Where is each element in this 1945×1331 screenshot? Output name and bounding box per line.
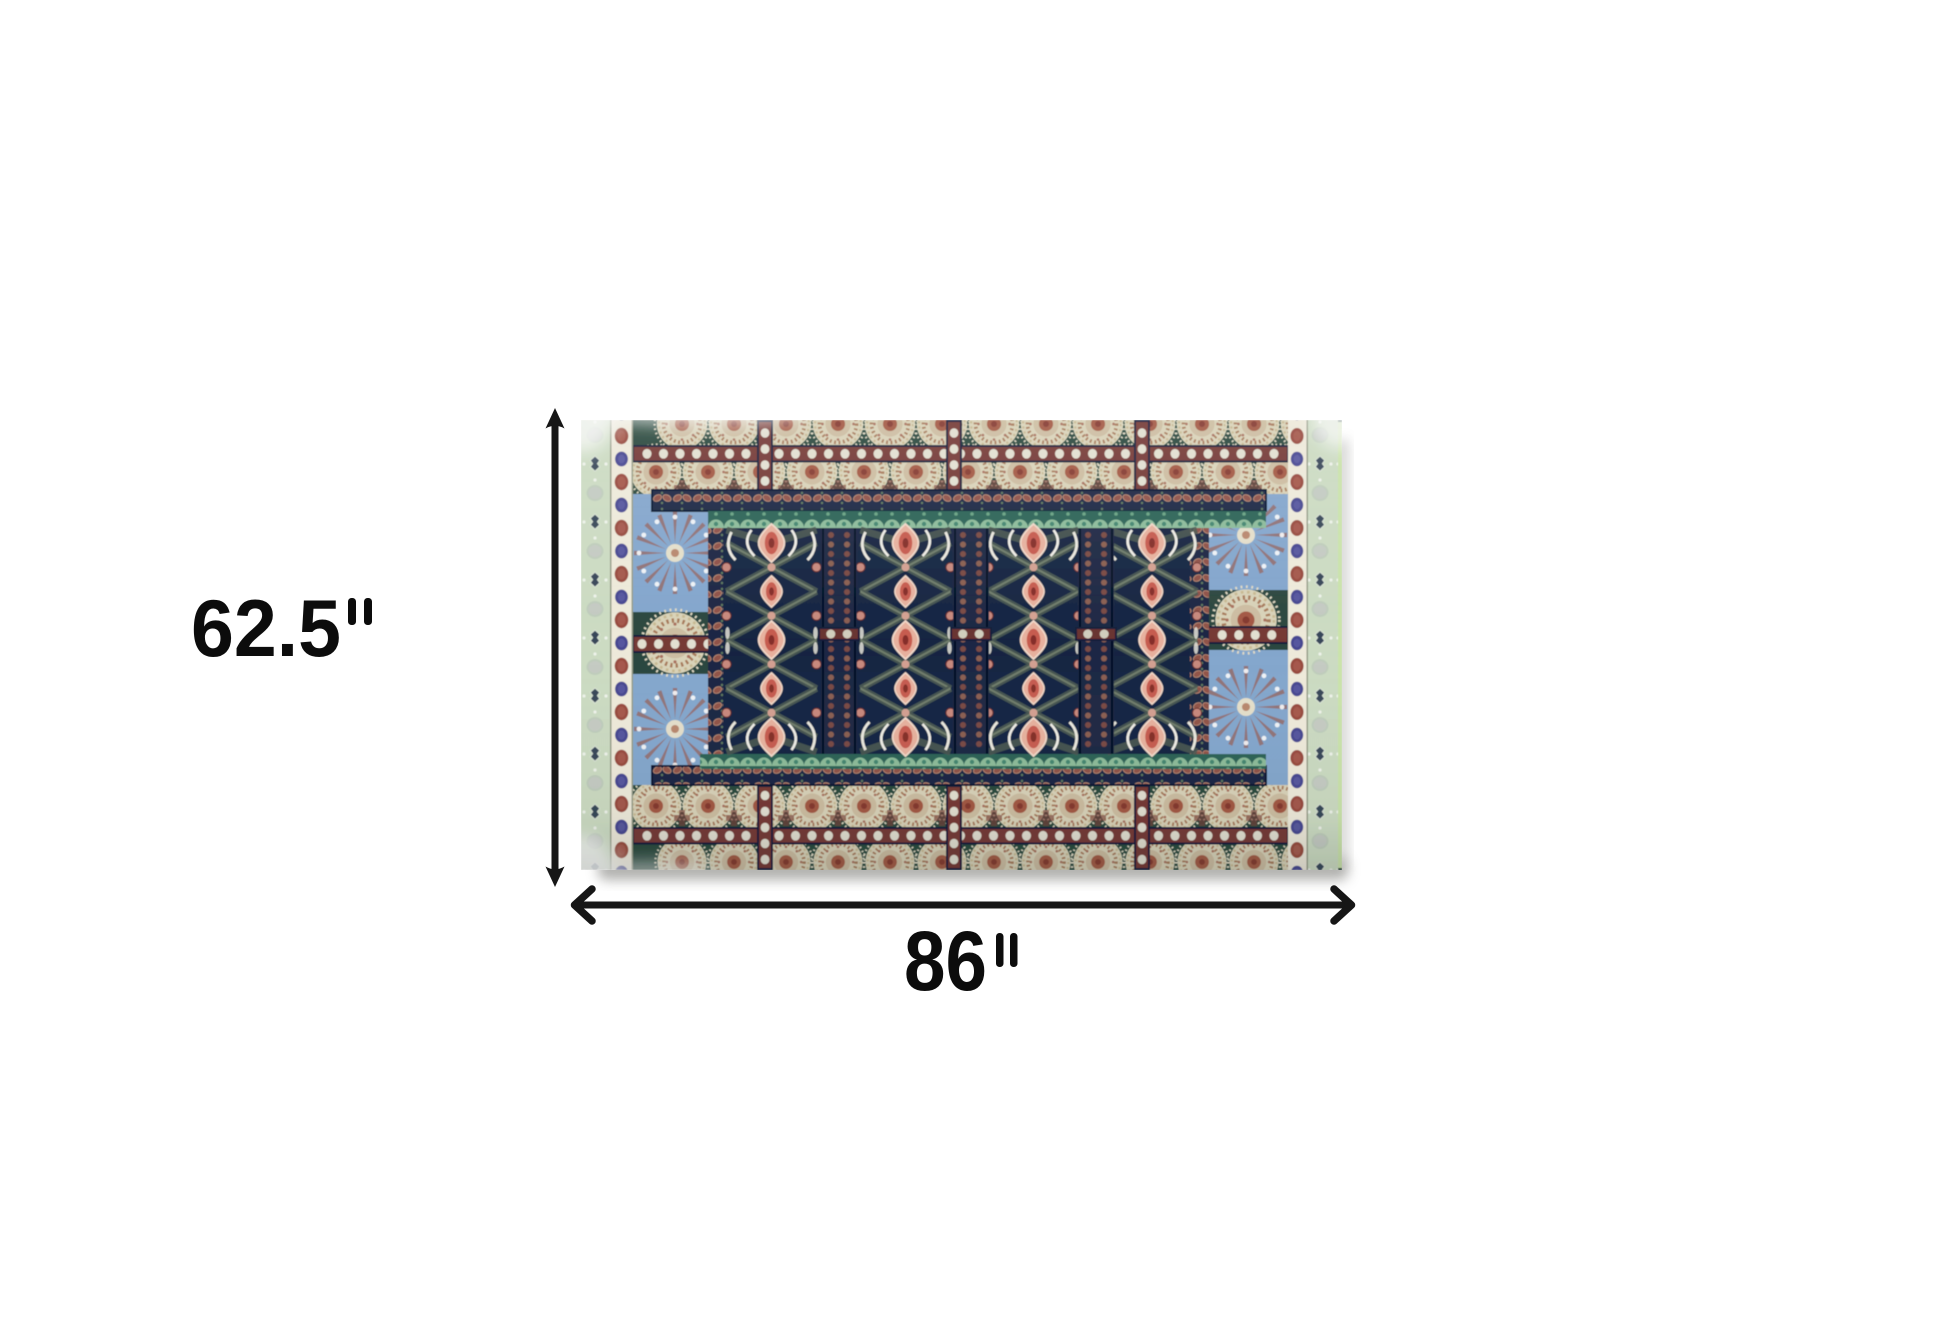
svg-text:62.5: 62.5 [191, 584, 341, 674]
svg-text:86: 86 [904, 914, 987, 1008]
